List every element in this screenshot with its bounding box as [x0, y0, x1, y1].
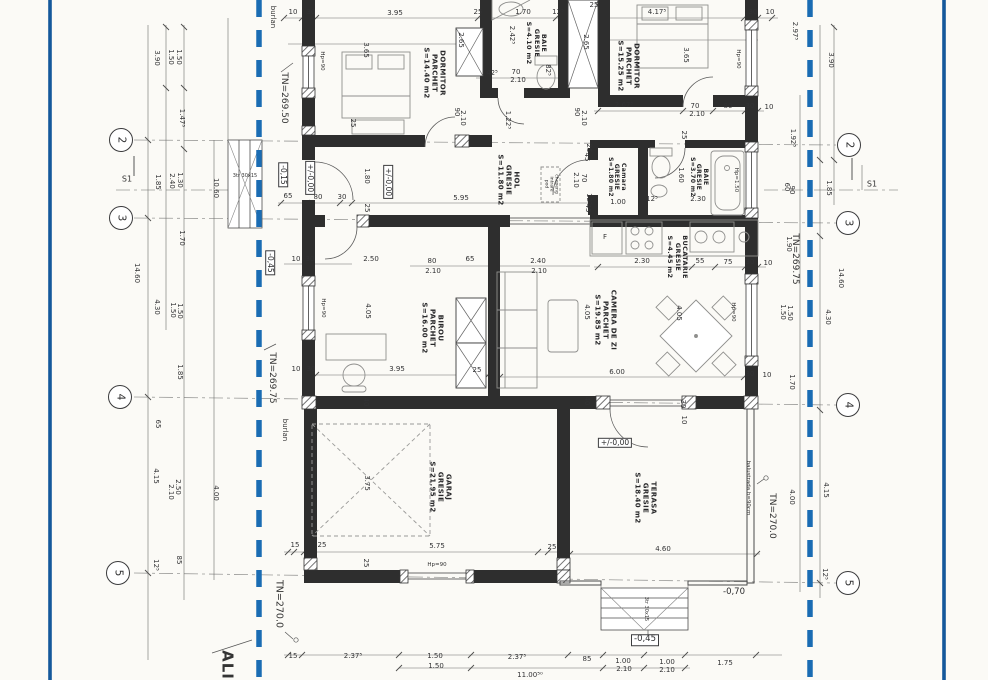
- dimension-label: 12⁵: [646, 196, 658, 204]
- annotation-label: TN=269.75: [790, 233, 800, 284]
- grid-axis-marker: 2: [109, 128, 133, 152]
- dimension-label: 2.40: [167, 173, 175, 189]
- dimension-label: 2.67⁵: [615, 102, 633, 110]
- room-label: Camara GRESIE S=1.80 m2: [606, 157, 626, 197]
- dimension-label: 2.30: [634, 258, 650, 266]
- dimension-label: 2.10: [510, 77, 526, 85]
- annotation-label: S1: [122, 176, 132, 185]
- dimension-label: 1.30: [175, 172, 183, 188]
- dimension-label: 12⁵: [820, 568, 828, 580]
- annotation-label: Hp=90: [319, 51, 325, 70]
- dimension-label: 25: [473, 367, 482, 375]
- dimension-label: 80: [724, 103, 733, 111]
- annotation-label: ALI: [219, 650, 236, 680]
- annotation-label: Hp=90: [320, 298, 326, 317]
- grid-axis-marker: 5: [836, 571, 860, 595]
- dimension-label: 6.00: [609, 369, 625, 377]
- dimension-label: 65: [284, 193, 293, 201]
- level-label: +/-0,00: [305, 161, 315, 195]
- dimension-label: 5.75: [429, 543, 445, 551]
- dimension-label: 45: [582, 153, 590, 162]
- dimension-label: 10: [679, 416, 687, 425]
- dimension-label: 10: [289, 9, 298, 17]
- dimension-label: 25: [318, 542, 327, 550]
- annotation-label: TN=269.75: [267, 352, 277, 403]
- dimension-label: 11.00⁵⁰: [517, 672, 543, 680]
- grid-axis-marker: 4: [836, 393, 860, 417]
- grid-axis-marker: 2: [837, 133, 861, 157]
- dimension-label: 90: [787, 186, 795, 195]
- dimension-label: 2.10: [579, 110, 587, 126]
- room-label: BIROU PARCHET S=16.00 m2: [420, 302, 443, 353]
- dimension-label: 1.50: [166, 49, 174, 65]
- dimension-label: 2.10: [616, 666, 632, 674]
- dimension-label: 30: [678, 400, 686, 409]
- room-label: BAIE GRESIE S=3.70 m2: [688, 157, 708, 197]
- dimension-label: 10: [763, 372, 772, 380]
- dimension-label: 30: [306, 256, 315, 264]
- dimension-label: 2.50: [363, 256, 379, 264]
- dimension-label: 4.15: [151, 468, 159, 484]
- dimension-label: 1.60: [676, 167, 684, 183]
- dimension-label: 12⁵: [151, 559, 159, 571]
- annotation-label: 3tr 30x15: [233, 174, 257, 180]
- level-label: -0,45: [265, 250, 275, 275]
- dimension-label: 14.60: [132, 263, 140, 283]
- level-label: +/-0,00: [598, 438, 632, 448]
- dimension-label: 1.00: [610, 199, 626, 207]
- room-label: CAMERA DE ZI PARCHET S=19.85 m2: [593, 290, 616, 350]
- dimension-label: 3.75: [362, 475, 370, 491]
- annotation-label: 3tr 30x15: [642, 597, 648, 621]
- dimension-label: 3.90: [152, 50, 160, 66]
- dimension-label: 2.42⁵: [507, 26, 515, 44]
- dimension-label: 80: [428, 258, 437, 266]
- level-label: -0,45: [631, 634, 659, 646]
- dimension-label: 10: [765, 104, 774, 112]
- annotation-label: Hp=1.50: [733, 168, 739, 192]
- dimension-label: 40: [361, 398, 369, 407]
- dimension-label: 10: [766, 9, 775, 17]
- dimension-label: 4.05: [674, 305, 682, 321]
- dimension-label: 5.95: [453, 195, 469, 203]
- dimension-label: 3.95: [387, 10, 403, 18]
- dimension-label: 2.10: [571, 172, 579, 188]
- dimension-label: 4.05: [582, 304, 590, 320]
- dimension-label: 1.70: [177, 230, 185, 246]
- dimension-label: 3.65: [681, 47, 689, 63]
- grid-axis-marker: 4: [108, 385, 132, 409]
- dimension-label: 1.75: [717, 660, 733, 668]
- room-label: HOL GRESIE S=11.80 m2: [496, 154, 519, 205]
- dimension-label: 55: [696, 258, 705, 266]
- dimension-label: 10: [292, 366, 301, 374]
- dimension-label: 2.97⁵: [790, 22, 798, 40]
- dimension-label: 30: [307, 9, 316, 17]
- dimension-label: 25: [474, 9, 483, 17]
- level-label: -0,70: [723, 588, 745, 598]
- dimension-label: 82⁵: [543, 64, 551, 76]
- dimension-label: 85: [583, 656, 592, 664]
- dimension-label: 4.15: [821, 482, 829, 498]
- dimension-label: 1.50: [427, 653, 443, 661]
- dimension-label: 85: [174, 556, 182, 565]
- dimension-label: 30: [307, 366, 316, 374]
- dimension-label: 25: [362, 204, 370, 213]
- dimension-label: 3.95: [389, 366, 405, 374]
- dimension-label: 1.47⁵: [177, 109, 185, 127]
- dimension-label: 4.00: [787, 489, 795, 505]
- annotation-label: F: [603, 234, 607, 242]
- dimension-label: 10: [292, 256, 301, 264]
- dimension-label: 2.10: [659, 667, 675, 675]
- annotation-label: Hp=90: [730, 302, 736, 321]
- room-label: BAIE GRESIE S=4.10 m2: [525, 22, 547, 65]
- dimension-label: 1.70: [515, 9, 531, 17]
- dimension-label: 30: [746, 259, 755, 267]
- dimension-label: 1.50: [175, 303, 183, 319]
- dimension-label: 2.65: [581, 34, 589, 50]
- dimension-label: 25: [679, 131, 687, 140]
- dimension-label: 75: [724, 259, 733, 267]
- dimension-label: 1.85: [824, 180, 832, 196]
- dimension-label: 4.60: [655, 546, 671, 554]
- dimension-label: 4.05: [363, 303, 371, 319]
- dimension-label: 2.37⁵: [508, 654, 526, 662]
- room-label: DORMITOR PARCHET S=15.25 m2: [616, 40, 639, 91]
- dimension-label: 1.85: [175, 364, 183, 380]
- annotation-label: burlan: [268, 6, 276, 28]
- grid-axis-marker: 3: [109, 206, 133, 230]
- dimension-label: 2.10: [531, 268, 547, 276]
- dimension-label: 15: [289, 653, 298, 661]
- dimension-label: 25: [548, 544, 557, 552]
- annotation-label: TN=270.0: [273, 580, 284, 628]
- dimension-label: 25: [348, 119, 356, 128]
- level-label: -0,15: [278, 162, 288, 187]
- annotation-label: S1: [867, 181, 877, 190]
- dimension-label: 2.37⁵: [344, 653, 362, 661]
- dimension-label: 70: [579, 174, 587, 183]
- dimension-label: 4.17⁵: [648, 9, 666, 17]
- dimension-label: 40: [582, 397, 590, 406]
- label-layer: 10303.95251.7012⁵4.17⁵3010253.901.501.50…: [0, 0, 988, 680]
- room-label: DORMITOR PARCHET S=14.40 m2: [422, 47, 445, 98]
- dimension-label: 1.50: [174, 49, 182, 65]
- annotation-label: Hp=90: [427, 562, 446, 568]
- dimension-label: 15: [291, 542, 300, 550]
- dimension-label: 10.60: [211, 178, 219, 198]
- dimension-label: 1.22⁵: [503, 111, 511, 129]
- floor-plan-sheet: 10303.95251.7012⁵4.17⁵3010253.901.501.50…: [0, 0, 988, 680]
- dimension-label: 1.50: [785, 305, 793, 321]
- dimension-label: 1.50: [428, 663, 444, 671]
- dimension-label: 30: [338, 194, 347, 202]
- room-label: BUCATARIE GRESIE S=4.45 m2: [666, 235, 688, 279]
- room-label: TERASA GRESIE S=18.40 m2: [633, 472, 656, 523]
- dimension-label: 2.40: [530, 258, 546, 266]
- dimension-label: 42⁵: [486, 70, 498, 78]
- annotation-label: TN=269.50: [279, 72, 289, 123]
- dimension-label: 14.60: [836, 268, 844, 288]
- dimension-label: 2.65: [456, 32, 464, 48]
- dimension-label: 2.10: [458, 110, 466, 126]
- dimension-label: 4.30: [152, 299, 160, 315]
- dimension-label: 3.65: [361, 42, 369, 58]
- level-label: +/-0,00: [383, 165, 393, 199]
- annotation-label: TN=270.0: [767, 493, 777, 539]
- dimension-label: 4.00: [211, 485, 219, 501]
- dimension-label: 2.10: [689, 111, 705, 119]
- dimension-label: 80: [314, 194, 323, 202]
- dimension-label: 4.30: [823, 309, 831, 325]
- dimension-label: 12⁵: [552, 9, 564, 17]
- dimension-label: 30: [749, 9, 758, 17]
- dimension-label: 2.30: [690, 196, 706, 204]
- annotation-label: Hp=90: [735, 49, 741, 68]
- dimension-label: 65: [466, 256, 475, 264]
- annotation-label: chepeng intrare pod: [543, 174, 558, 193]
- grid-axis-marker: 3: [836, 211, 860, 235]
- dimension-label: 30: [746, 371, 755, 379]
- dimension-label: 25: [361, 559, 369, 568]
- dimension-label: 45: [583, 204, 591, 213]
- dimension-label: 10: [764, 260, 773, 268]
- room-label: GARAJ GRESIE S=21.95 m2: [428, 461, 451, 512]
- dimension-label: 1.85: [153, 174, 161, 190]
- dimension-label: 65: [153, 420, 161, 429]
- dimension-label: 3.90: [826, 52, 834, 68]
- dimension-label: 1.80: [362, 168, 370, 184]
- dimension-label: 25: [584, 144, 592, 153]
- grid-axis-marker: 5: [106, 561, 130, 585]
- dimension-label: 30: [746, 103, 755, 111]
- annotation-label: balustrada h=90cm: [745, 461, 751, 516]
- dimension-label: 2.10: [166, 484, 174, 500]
- dimension-label: 25: [590, 2, 599, 10]
- dimension-label: 1.92⁵: [788, 129, 796, 147]
- dimension-label: 1.70: [787, 374, 795, 390]
- dimension-label: 2.10: [425, 268, 441, 276]
- annotation-label: burlan: [280, 419, 288, 441]
